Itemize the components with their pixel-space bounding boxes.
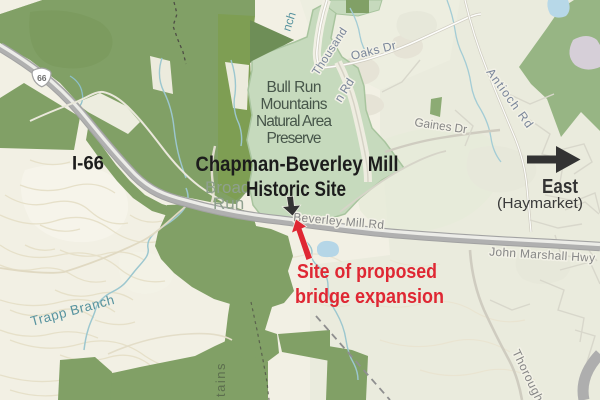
- svg-text:Site of proposed: Site of proposed: [297, 261, 437, 283]
- svg-text:Mountains: Mountains: [261, 96, 328, 113]
- svg-text:tains: tains: [213, 362, 228, 397]
- svg-text:Chapman-Beverley Mill: Chapman-Beverley Mill: [196, 153, 399, 176]
- svg-text:Bull Run: Bull Run: [267, 79, 322, 96]
- svg-text:Preserve: Preserve: [267, 130, 322, 147]
- svg-text:I-66: I-66: [72, 153, 104, 175]
- svg-text:Run: Run: [213, 194, 244, 213]
- svg-text:66: 66: [37, 73, 47, 83]
- svg-text:(Haymarket): (Haymarket): [497, 195, 583, 212]
- svg-text:Natural Area: Natural Area: [256, 113, 332, 130]
- svg-text:Historic Site: Historic Site: [246, 178, 346, 201]
- svg-text:bridge expansion: bridge expansion: [295, 286, 444, 308]
